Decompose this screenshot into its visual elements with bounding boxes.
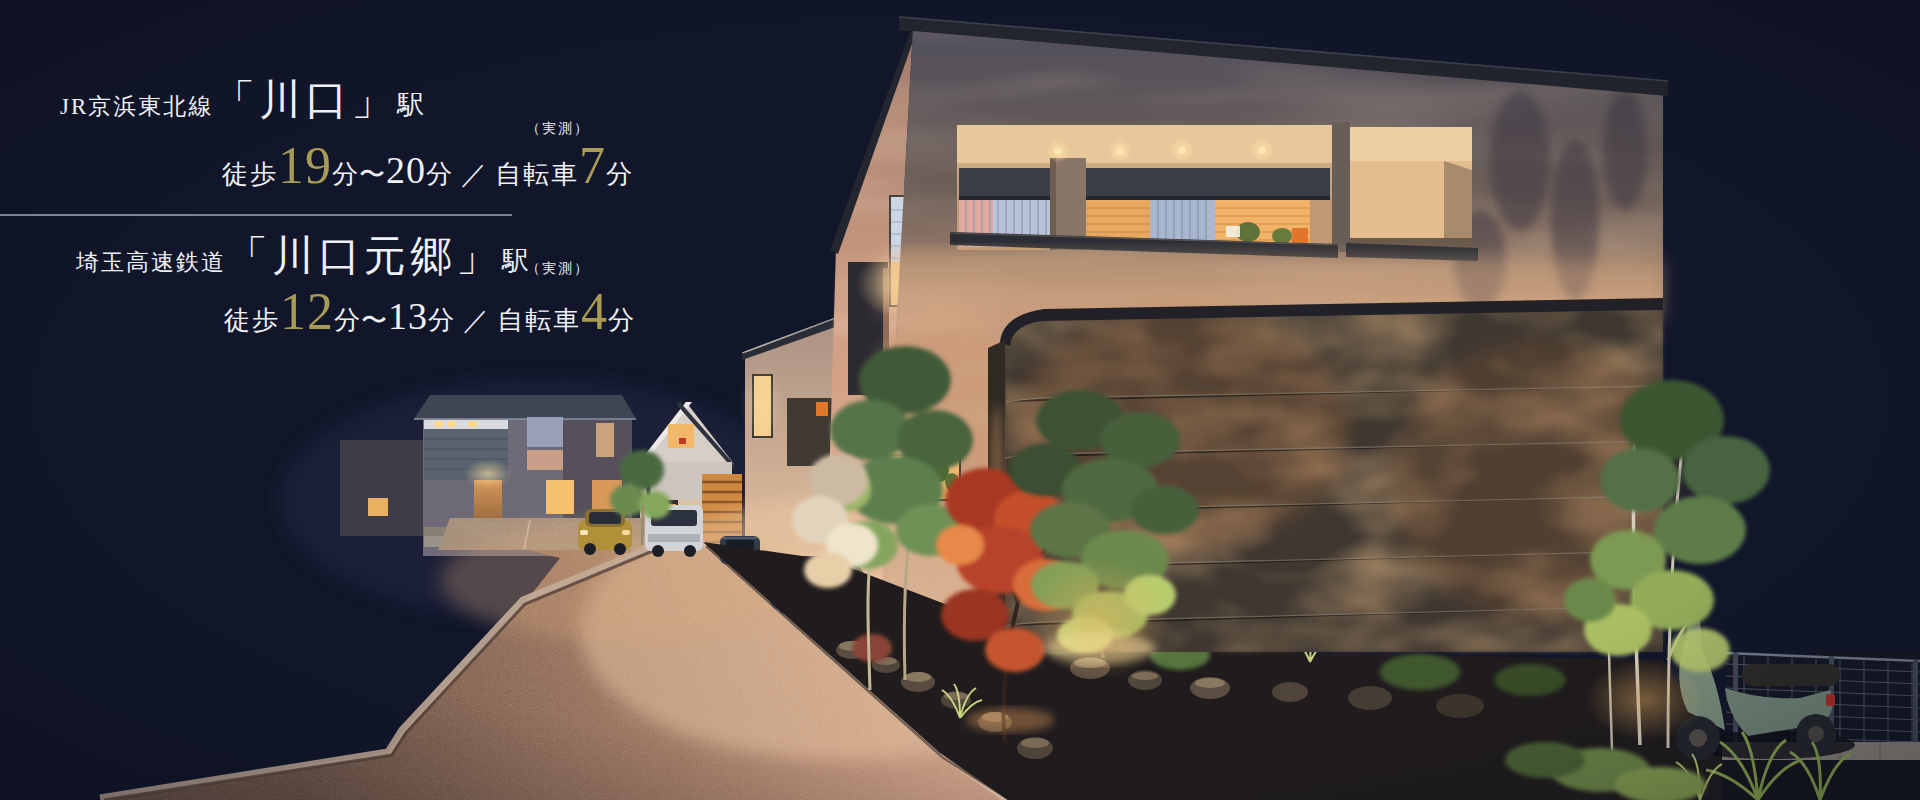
station2-measurement-note: （実測） (526, 260, 590, 278)
station2-walk-min: 12 (280, 286, 334, 338)
station2-walk-max: 13 (388, 297, 428, 335)
station2-bicycle-min: 4 (581, 286, 608, 338)
station2-title: 埼玉高速鉄道「川口元郷」駅 (76, 228, 530, 284)
station1-slash: ／ (453, 157, 495, 192)
station2-name: 「川口元郷」 (226, 228, 502, 284)
station1-walk-min: 19 (278, 140, 332, 192)
station2-tilde: 〜 (361, 303, 388, 338)
station2-access-times: 徒歩12分〜13分／自転車4分 (224, 286, 635, 338)
access-info-overlay: JR京浜東北線「川口」駅 （実測） 徒歩19分〜20分／自転車7分 埼玉高速鉄道… (0, 0, 1920, 800)
station1-walk-max: 20 (386, 151, 426, 189)
station2-unit2: 分 (428, 303, 455, 338)
station1-bicycle-label: 自転車 (495, 157, 579, 192)
station1-unit1: 分 (332, 157, 359, 192)
station2-unit1: 分 (334, 303, 361, 338)
station1-measurement-note: （実測） (526, 120, 590, 138)
station1-access-times: 徒歩19分〜20分／自転車7分 (222, 140, 633, 192)
station1-suffix: 駅 (397, 87, 425, 123)
station2-slash: ／ (455, 303, 497, 338)
station2-walk-label: 徒歩 (224, 303, 280, 338)
section-divider (0, 214, 512, 216)
station1-title: JR京浜東北線「川口」駅 (60, 72, 425, 128)
station1-tilde: 〜 (359, 157, 386, 192)
station2-railway-line: 埼玉高速鉄道 (76, 247, 226, 278)
station1-railway-line: JR京浜東北線 (60, 91, 213, 122)
station1-unit2: 分 (426, 157, 453, 192)
hero-banner: JR京浜東北線「川口」駅 （実測） 徒歩19分〜20分／自転車7分 埼玉高速鉄道… (0, 0, 1920, 800)
station1-walk-label: 徒歩 (222, 157, 278, 192)
station2-bicycle-label: 自転車 (497, 303, 581, 338)
station1-name: 「川口」 (213, 72, 397, 128)
station1-unit3: 分 (606, 157, 633, 192)
station2-unit3: 分 (608, 303, 635, 338)
station1-bicycle-min: 7 (579, 140, 606, 192)
